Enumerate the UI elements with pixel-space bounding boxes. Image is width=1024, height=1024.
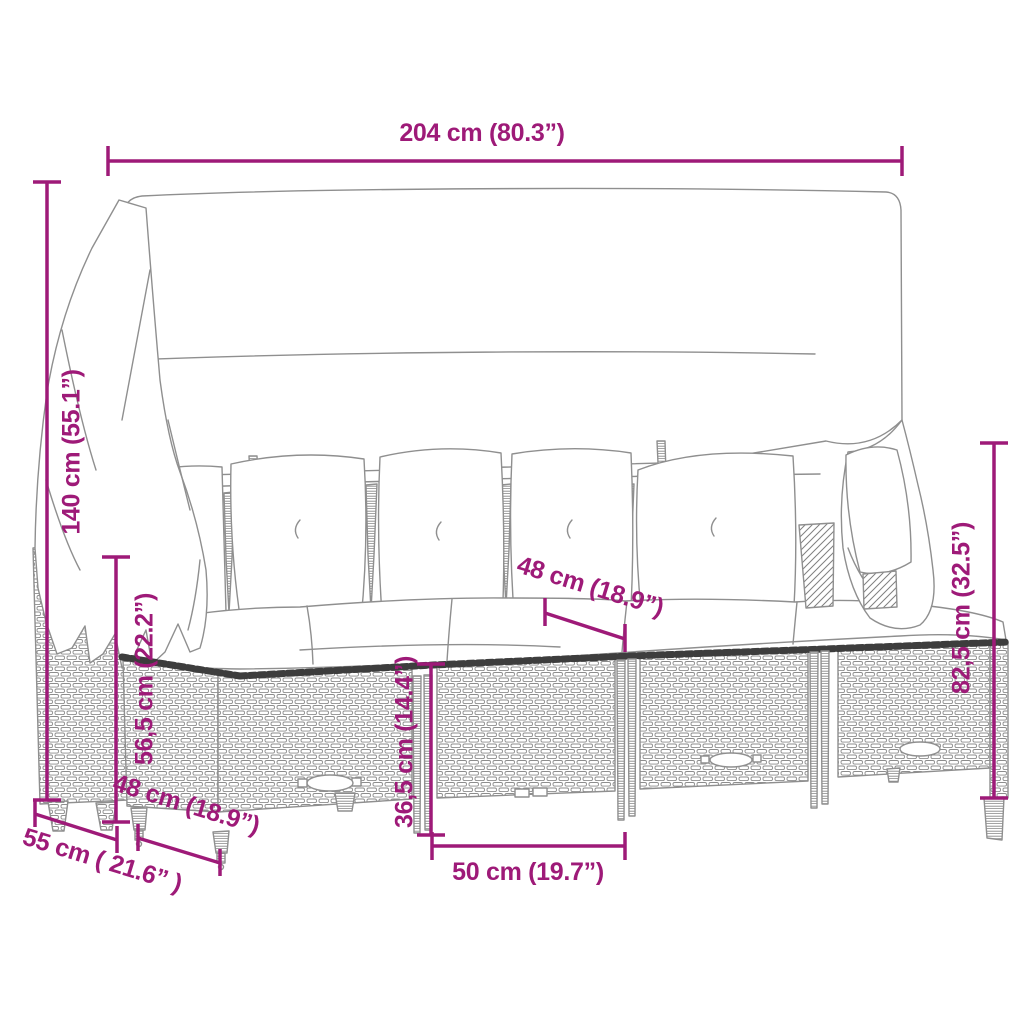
foot [335,793,355,811]
leg [810,652,818,808]
back-strip [366,484,377,610]
product-dimension-diagram: 204 cm (80.3”) 140 cm (55.1”) 56,5 cm (2… [0,0,1024,1024]
canopy-panel [123,189,902,477]
pillow [637,453,796,612]
base-module [218,665,412,812]
dim-label: 56,5 cm (22.2”) [131,593,159,765]
base-module [640,651,808,789]
dim-overall-width: 204 cm (80.3”) [108,119,902,176]
leg [628,659,636,816]
furniture-sketch [33,189,1008,870]
leg [617,660,625,820]
dim-line [138,838,220,863]
base-module [437,657,615,798]
dim-label: 204 cm (80.3”) [399,119,564,147]
base-handle [900,742,940,756]
left-panel-foot-back [48,801,68,831]
corner-post [863,571,897,609]
foot [984,797,1004,840]
left-panel-foot-front [96,802,116,830]
foot [887,768,900,782]
corner-post [799,523,834,608]
pillow [231,455,366,626]
armrest-pillow [846,447,911,574]
dim-label: 36,5 cm (14.4”) [391,656,419,828]
dim-label: 50 cm (19.7”) [452,858,604,886]
leg [821,651,829,804]
dim-seat-front-width: 50 cm (19.7”) [432,832,625,886]
diagram-canvas: 204 cm (80.3”) 140 cm (55.1”) 56,5 cm (2… [0,0,1024,1024]
dim-label: 82,5 cm (32.5”) [948,522,976,694]
dim-label: 140 cm (55.1”) [58,369,86,534]
